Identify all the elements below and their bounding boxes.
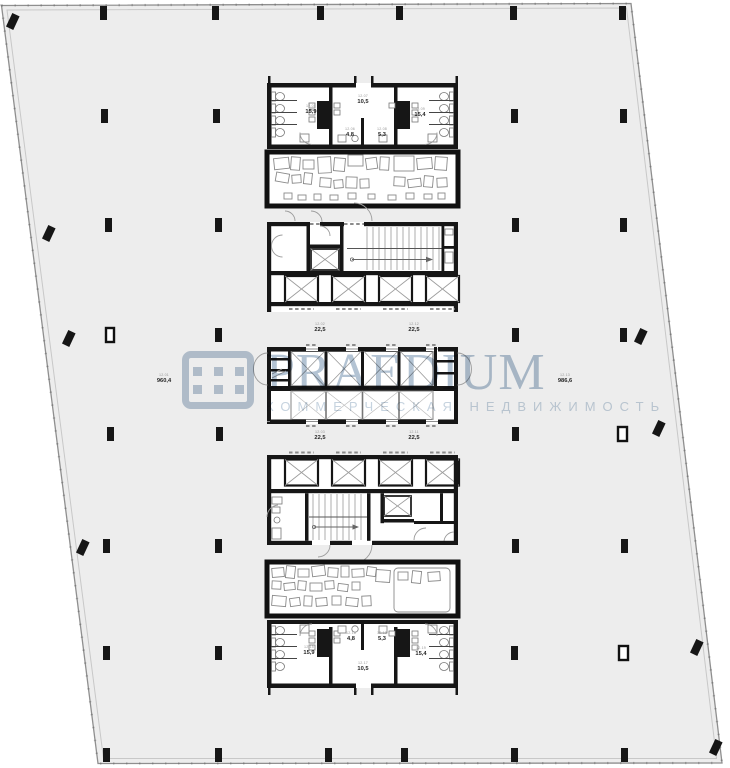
core-bottom-wc-block	[267, 620, 458, 695]
area-label-bottom-aux-left: 12.16 4,8	[346, 631, 356, 642]
core-upper-stair-elevator-block	[267, 222, 459, 312]
area-label-top-lobby: 12.07 10,5	[357, 94, 368, 105]
area-label-top-aux-left: 12.06 4,8	[345, 127, 355, 138]
core-top-technical-room	[267, 152, 458, 206]
area-label-lower-mid-right: 12.11 22,5	[408, 430, 419, 441]
praedium-watermark: PRAEDIUM КОММЕРЧЕСКАЯ НЕДВИЖИМОСТЬ	[182, 351, 666, 414]
area-label-bottom-wc-left: 12.15 15,9	[303, 645, 314, 656]
plumbing-shaft	[317, 629, 332, 657]
watermark-brand: PRAEDIUM	[266, 351, 666, 395]
praedium-dots-logo-icon	[182, 351, 254, 409]
plumbing-shaft	[317, 101, 332, 129]
area-label-top-wc-right: 12.09 15,4	[414, 107, 425, 118]
area-label-top-wc-left: 12.05 15,9	[305, 104, 316, 115]
core-top-wc-block	[267, 76, 458, 149]
area-label-bottom-aux-right: 12.18 5,3	[377, 631, 387, 642]
area-label-top-aux-right: 12.08 5,3	[377, 127, 387, 138]
area-label-main-left: 12.01 960,4	[157, 373, 171, 384]
floor-plan-page: PRAEDIUM КОММЕРЧЕСКАЯ НЕДВИЖИМОСТЬ 12.01…	[0, 0, 730, 768]
area-label-bottom-lobby: 12.17 10,5	[357, 661, 368, 672]
area-label-upper-mid-left: 12.02 22,5	[314, 322, 325, 333]
plumbing-shaft	[396, 629, 410, 657]
area-label-lower-mid-left: 12.03 22,5	[314, 430, 325, 441]
area-label-upper-mid-right: 12.12 22,5	[408, 322, 419, 333]
area-label-bottom-wc-right: 12.19 15,4	[415, 646, 426, 657]
watermark-tagline: КОММЕРЧЕСКАЯ НЕДВИЖИМОСТЬ	[266, 399, 666, 414]
area-label-main-right: 12.13 986,6	[558, 373, 572, 384]
plumbing-shaft	[396, 101, 410, 129]
core-bottom-technical-room	[267, 562, 458, 616]
